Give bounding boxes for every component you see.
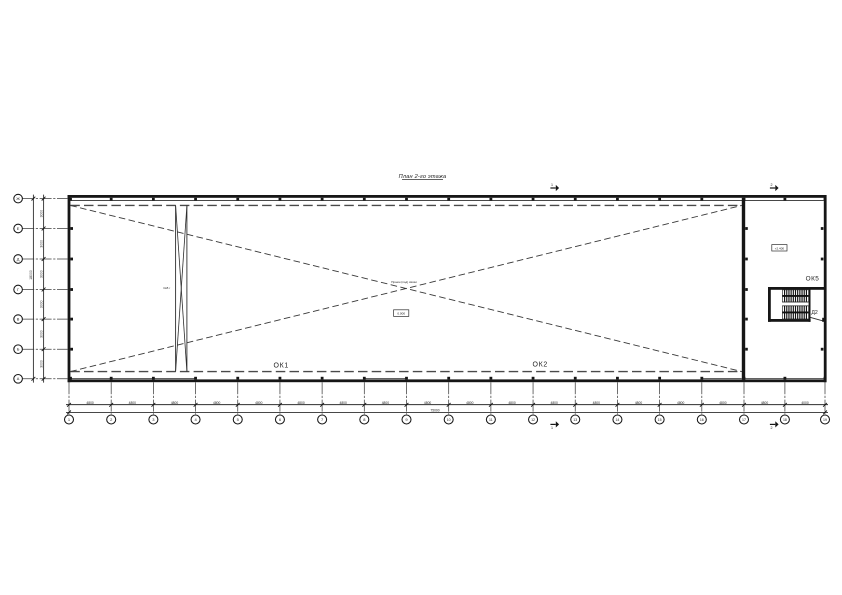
- svg-text:4800: 4800: [129, 401, 137, 405]
- svg-text:3000: 3000: [40, 270, 44, 278]
- svg-text:4800: 4800: [255, 401, 263, 405]
- svg-text:Проем (под) связи: Проем (под) связи: [391, 280, 417, 284]
- svg-text:ОК5: ОК5: [806, 275, 820, 282]
- svg-text:4800: 4800: [635, 401, 643, 405]
- svg-text:75000: 75000: [430, 408, 439, 412]
- svg-text:В: В: [17, 317, 20, 322]
- svg-text:4800: 4800: [340, 401, 348, 405]
- svg-text:3000: 3000: [40, 360, 44, 368]
- svg-text:4800: 4800: [466, 401, 474, 405]
- svg-text:+2.400: +2.400: [775, 247, 785, 251]
- svg-text:4800: 4800: [593, 401, 601, 405]
- svg-text:4800: 4800: [382, 401, 390, 405]
- svg-text:11: 11: [489, 418, 493, 422]
- svg-text:4000: 4000: [801, 401, 809, 405]
- svg-text:0.000: 0.000: [397, 312, 405, 316]
- svg-text:Е: Е: [17, 226, 20, 231]
- svg-text:18: 18: [783, 418, 787, 422]
- svg-text:Д: Д: [17, 256, 20, 261]
- svg-text:1: 1: [551, 183, 553, 187]
- svg-text:Б: Б: [17, 347, 20, 352]
- svg-text:18000: 18000: [29, 270, 33, 280]
- svg-text:4800: 4800: [719, 401, 727, 405]
- svg-text:3000: 3000: [40, 300, 44, 308]
- svg-text:17: 17: [742, 418, 746, 422]
- svg-text:4800: 4800: [171, 401, 179, 405]
- svg-text:15: 15: [658, 418, 662, 422]
- svg-text:4800: 4800: [86, 401, 94, 405]
- svg-text:3000: 3000: [40, 330, 44, 338]
- svg-text:Ж: Ж: [16, 196, 20, 201]
- svg-text:ОК2: ОК2: [533, 362, 549, 369]
- svg-text:Д2: Д2: [811, 310, 818, 316]
- svg-text:4800: 4800: [297, 401, 305, 405]
- svg-text:А: А: [17, 376, 20, 381]
- svg-text:4800: 4800: [424, 401, 432, 405]
- svg-text:10: 10: [447, 418, 451, 422]
- svg-text:13: 13: [573, 418, 577, 422]
- svg-text:19: 19: [823, 418, 827, 422]
- svg-text:14: 14: [615, 418, 619, 422]
- svg-text:4800: 4800: [761, 401, 769, 405]
- svg-text:ОК1: ОК1: [274, 362, 290, 369]
- svg-text:3000: 3000: [40, 210, 44, 218]
- svg-text:2: 2: [771, 426, 773, 430]
- svg-text:2: 2: [771, 183, 773, 187]
- svg-text:Св5 г: Св5 г: [163, 286, 170, 290]
- svg-text:12: 12: [531, 418, 535, 422]
- svg-text:3000: 3000: [40, 240, 44, 248]
- svg-text:16: 16: [700, 418, 704, 422]
- svg-text:4800: 4800: [551, 401, 559, 405]
- svg-text:4800: 4800: [508, 401, 516, 405]
- svg-text:4800: 4800: [213, 401, 221, 405]
- svg-text:1: 1: [551, 426, 553, 430]
- svg-text:4800: 4800: [677, 401, 685, 405]
